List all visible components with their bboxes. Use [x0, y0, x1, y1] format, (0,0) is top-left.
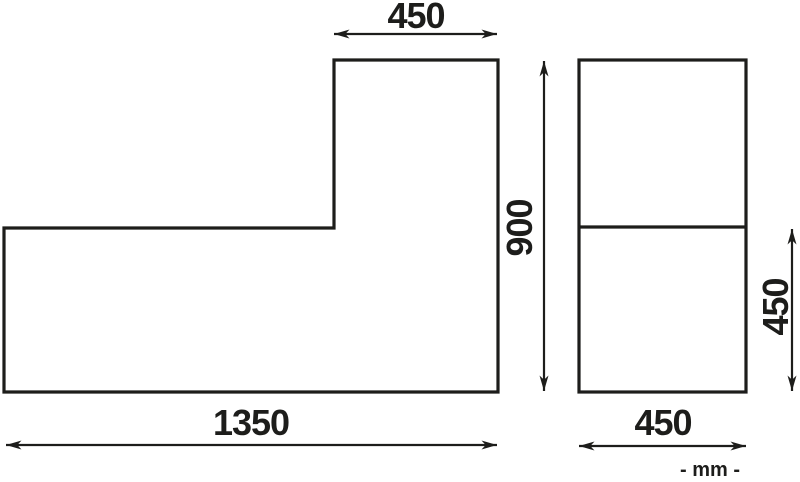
technical-drawing-canvas: 450 900 1350 450 450 - mm -: [0, 0, 800, 482]
dim-height: 900: [499, 61, 544, 391]
dim-bottom-width-label: 1350: [213, 402, 289, 443]
dim-panel-half-height-label: 450: [755, 278, 796, 335]
dim-panel-half-height: 450: [755, 229, 796, 391]
dimension-drawing: 450 900 1350 450 450 - mm -: [0, 0, 800, 482]
dim-bottom-width: 1350: [6, 402, 497, 445]
dim-height-label: 900: [499, 199, 540, 256]
dim-panel-width-label: 450: [634, 402, 691, 443]
l-shape-outline: [4, 60, 498, 392]
dim-top-width-label: 450: [387, 0, 444, 36]
units-label: - mm -: [680, 459, 740, 481]
dim-top-width: 450: [334, 0, 497, 36]
dim-panel-width: 450: [579, 402, 746, 446]
